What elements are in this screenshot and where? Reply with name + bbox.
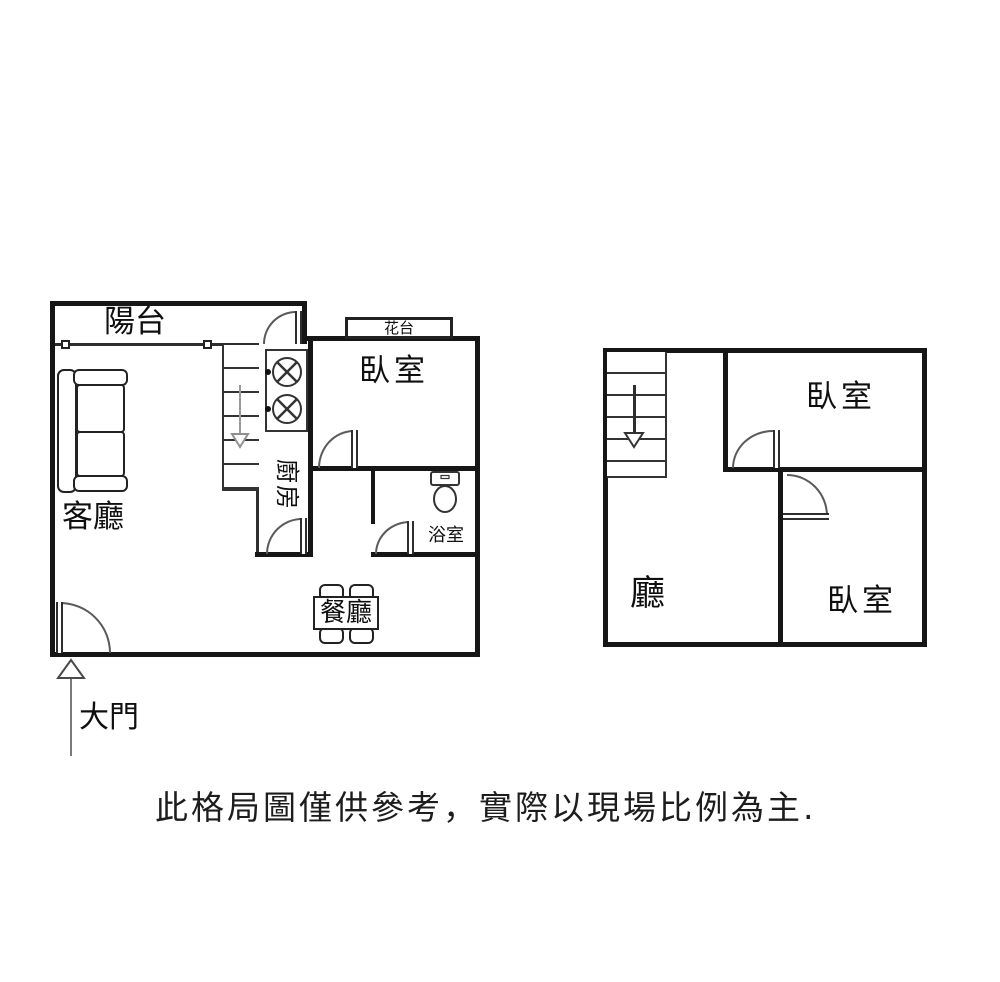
dining-label: 餐廳	[320, 600, 372, 626]
wall-right	[922, 348, 927, 647]
entrance-arrow-icon	[56, 658, 86, 680]
bathroom-door-swing	[375, 521, 410, 554]
entrance-arrow-line	[70, 679, 72, 756]
down-arrow-icon	[623, 432, 645, 449]
bedroom-bottom-door-swing	[787, 474, 828, 516]
flower-stand-label: 花台	[384, 321, 414, 336]
wall-outer-right	[475, 336, 480, 657]
wall-bathroom-left	[371, 466, 375, 524]
wall-balcony-top	[50, 301, 307, 306]
bedroom-top-door-leaf	[773, 430, 780, 468]
wall-bedroom-top-left	[723, 352, 728, 471]
stairs-arrow-line	[633, 385, 636, 434]
hall-label: 廳	[630, 577, 665, 612]
bathroom-door-leaf	[407, 521, 414, 554]
bedroom-top-label: 臥室	[806, 382, 876, 413]
bedroom-label: 臥室	[359, 356, 429, 387]
window-marker-icon	[203, 340, 212, 349]
floor-plan-image: 陽台 花台	[0, 0, 1000, 982]
wall-bottom	[603, 642, 927, 647]
bedroom-top-door-swing	[732, 430, 773, 468]
flower-stand: 花台	[345, 317, 453, 339]
entrance-label: 大門	[79, 703, 139, 733]
bedroom-bottom-door-leaf	[783, 513, 829, 520]
stairs-icon	[607, 352, 667, 478]
main-door-swing	[60, 602, 111, 653]
wall-outer-left	[50, 301, 55, 657]
stove-icon	[265, 349, 308, 432]
bedroom-door-swing	[318, 430, 354, 468]
wall-divider-vertical	[778, 467, 783, 647]
stairs-arrow-line	[239, 385, 241, 435]
kitchen-label: 廚房	[264, 436, 310, 534]
wall-outer-bottom	[50, 652, 480, 657]
balcony-label: 陽台	[104, 307, 166, 338]
down-arrow-icon	[230, 433, 250, 449]
balcony-door-swing	[263, 311, 296, 344]
toilet-icon	[429, 470, 461, 514]
main-door-leaf	[56, 602, 63, 653]
bathroom-label: 浴室	[428, 527, 464, 545]
disclaimer-text: 此格局圖僅供參考，實際以現場比例為主.	[155, 791, 817, 824]
balcony-door-leaf	[295, 311, 302, 344]
bedroom-bottom-label: 臥室	[827, 586, 897, 617]
living-room-label: 客廳	[62, 502, 124, 533]
window-marker-icon	[61, 340, 70, 349]
bedroom-door-leaf	[351, 430, 358, 468]
